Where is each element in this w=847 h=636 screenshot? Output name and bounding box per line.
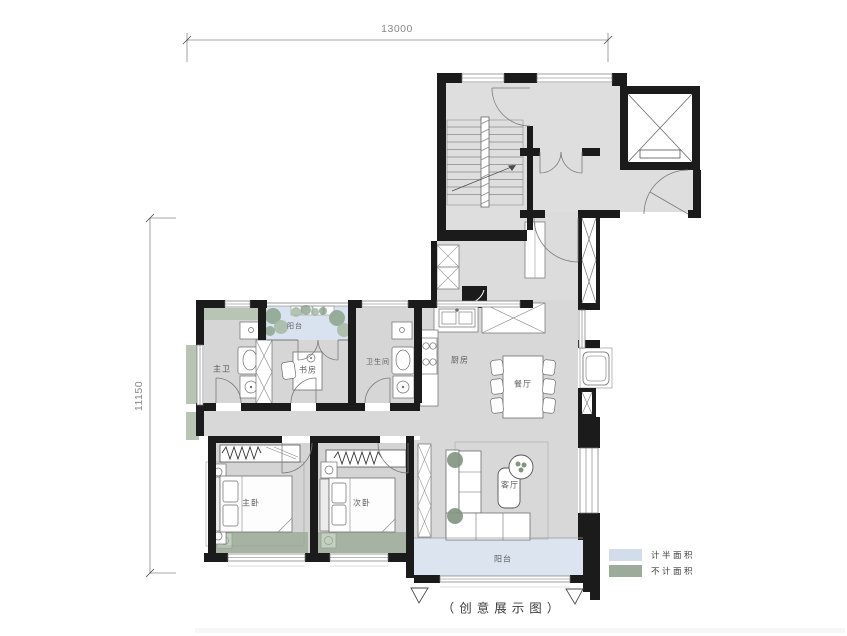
watermark-bar	[195, 628, 845, 633]
legend-item-half-area: 计半面积	[609, 549, 695, 561]
legend: 计半面积 不计面积	[609, 549, 695, 581]
plan-caption: （创意展示图）	[442, 598, 565, 617]
dimension-top-label: 13000	[381, 23, 413, 35]
room-label-south-balcony: 阳台	[494, 554, 512, 565]
room-label-kitchen: 厨房	[451, 355, 469, 366]
room-label-dining: 餐厅	[514, 379, 532, 390]
room-label-living-room: 客厅	[501, 480, 519, 491]
room-label-second-bedroom: 次卧	[353, 498, 371, 509]
bay-window-seat	[578, 348, 612, 418]
room-label-north-balcony: 阳台	[287, 321, 303, 331]
elevator	[620, 86, 700, 170]
bathroom-fixtures	[392, 322, 414, 398]
floor-plan-svg	[0, 0, 847, 636]
room-label-study: 书房	[299, 365, 317, 376]
legend-label-half-area: 计半面积	[651, 549, 695, 561]
room-label-bathroom: 卫生间	[366, 357, 390, 367]
master-bedroom-furniture	[206, 445, 304, 546]
dimension-left-label: 11150	[133, 381, 145, 411]
legend-label-excluded-area: 不计面积	[651, 565, 695, 577]
legend-swatch-excluded-area	[609, 565, 642, 577]
room-label-master-bath: 主卫	[213, 364, 231, 375]
legend-swatch-half-area	[609, 549, 642, 561]
floor-plan-canvas: 13000 11150 主卫 书房 阳台 卫生间 厨房 餐厅 主卧 次卧 客厅 …	[0, 0, 847, 636]
second-bedroom-furniture	[320, 450, 406, 532]
legend-item-excluded-area: 不计面积	[609, 565, 695, 577]
room-label-master-bedroom: 主卧	[242, 498, 260, 509]
